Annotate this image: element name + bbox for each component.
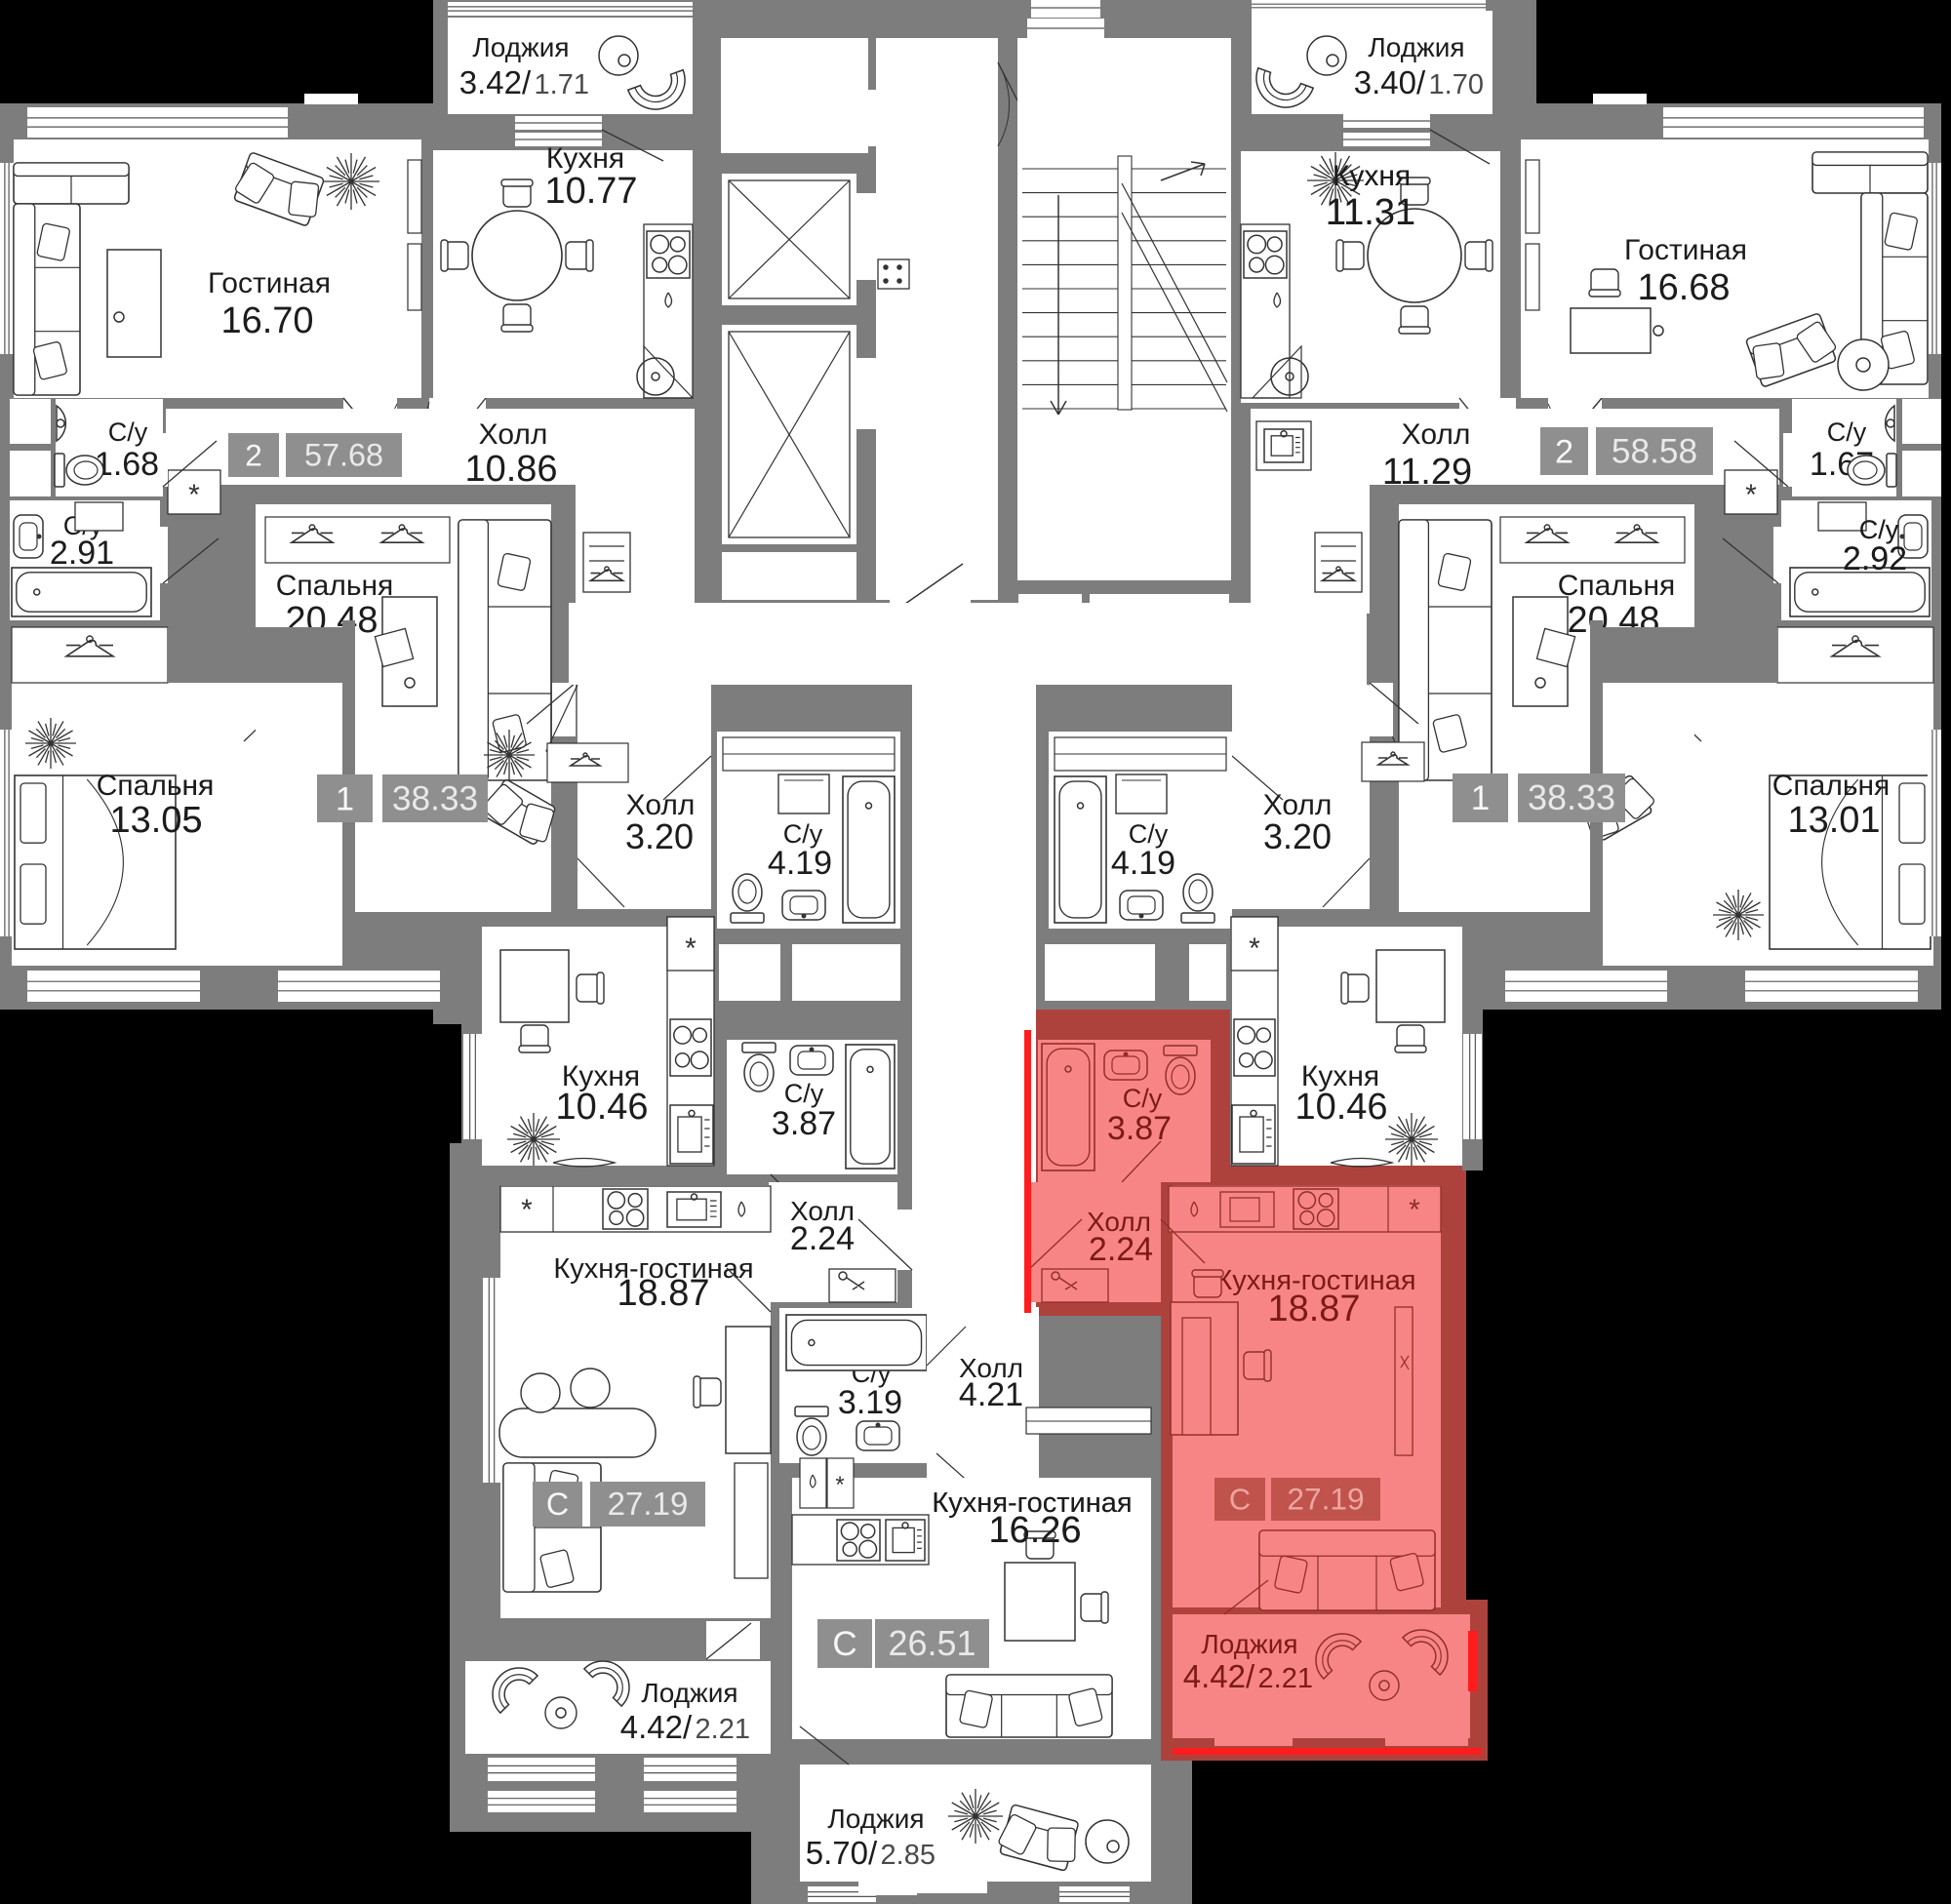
svg-text:18.87: 18.87 — [1267, 1289, 1360, 1329]
svg-text:16.68: 16.68 — [1637, 267, 1730, 308]
svg-text:*: * — [521, 1194, 533, 1226]
svg-text:*: * — [1745, 479, 1757, 511]
svg-text:26.51: 26.51 — [888, 1623, 975, 1663]
svg-text:3.20: 3.20 — [625, 816, 694, 856]
svg-text:*: * — [685, 932, 697, 965]
svg-text:2.21: 2.21 — [1258, 1663, 1313, 1694]
svg-text:Спальня: Спальня — [1558, 570, 1676, 602]
svg-text:/: / — [1416, 64, 1426, 100]
svg-text:Холл: Холл — [1402, 418, 1471, 451]
svg-text:/: / — [1246, 1658, 1255, 1694]
svg-text:16.26: 16.26 — [988, 1510, 1081, 1551]
svg-text:Спальня: Спальня — [276, 570, 394, 602]
svg-text:1.71: 1.71 — [535, 69, 589, 100]
svg-text:Холл: Холл — [479, 418, 548, 451]
svg-text:27.19: 27.19 — [608, 1487, 689, 1523]
svg-text:*: * — [1409, 1194, 1420, 1226]
svg-text:10.77: 10.77 — [544, 171, 637, 212]
svg-text:38.33: 38.33 — [1528, 777, 1615, 817]
svg-text:3.20: 3.20 — [1263, 816, 1332, 856]
svg-text:Спальня: Спальня — [1772, 770, 1891, 802]
svg-text:Лоджия: Лоджия — [827, 1804, 924, 1834]
svg-text:Гостиная: Гостиная — [208, 267, 331, 299]
svg-text:16.70: 16.70 — [220, 300, 313, 341]
svg-text:Кухня: Кухня — [1333, 160, 1411, 192]
svg-text:Лоджия: Лоджия — [641, 1678, 737, 1708]
svg-text:13.01: 13.01 — [1787, 800, 1880, 841]
svg-text:1.70: 1.70 — [1429, 69, 1484, 100]
svg-text:*: * — [188, 479, 200, 511]
svg-text:1.68: 1.68 — [95, 446, 159, 483]
svg-text:Спальня: Спальня — [97, 770, 215, 802]
svg-text:2.92: 2.92 — [1843, 540, 1907, 577]
svg-text:3.40: 3.40 — [1354, 64, 1416, 100]
svg-text:2.21: 2.21 — [696, 1714, 750, 1745]
svg-text:С: С — [1229, 1483, 1251, 1517]
svg-text:5.70: 5.70 — [806, 1835, 868, 1871]
svg-text:4.42: 4.42 — [620, 1709, 683, 1745]
svg-text:18.87: 18.87 — [617, 1273, 709, 1314]
svg-text:2.85: 2.85 — [881, 1840, 936, 1871]
svg-text:3.87: 3.87 — [1107, 1110, 1172, 1147]
svg-text:С: С — [546, 1487, 569, 1522]
svg-text:2: 2 — [1555, 433, 1573, 470]
svg-text:Лоджия: Лоджия — [1368, 32, 1464, 62]
svg-text:/: / — [868, 1835, 878, 1871]
svg-text:58.58: 58.58 — [1612, 432, 1697, 470]
svg-text:/: / — [683, 1709, 693, 1745]
svg-text:4.42: 4.42 — [1183, 1658, 1246, 1694]
svg-text:3.87: 3.87 — [772, 1105, 836, 1142]
svg-text:С/у: С/у — [108, 417, 148, 447]
svg-text:С/у: С/у — [784, 1079, 824, 1108]
svg-text:10.86: 10.86 — [464, 449, 557, 490]
svg-text:11.31: 11.31 — [1326, 192, 1415, 233]
svg-text:2: 2 — [245, 437, 262, 472]
svg-text:4.21: 4.21 — [959, 1376, 1023, 1413]
svg-text:4.19: 4.19 — [768, 845, 832, 882]
svg-text:27.19: 27.19 — [1287, 1482, 1364, 1517]
svg-text:С/у: С/у — [1123, 1084, 1163, 1113]
svg-text:Гостиная: Гостиная — [1624, 234, 1747, 266]
svg-text:Лоджия: Лоджия — [472, 32, 569, 62]
svg-text:3.19: 3.19 — [838, 1384, 902, 1421]
svg-text:*: * — [1249, 932, 1260, 965]
svg-text:1: 1 — [1471, 779, 1490, 817]
svg-text:10.46: 10.46 — [555, 1087, 648, 1128]
svg-text:Лоджия: Лоджия — [1201, 1629, 1297, 1659]
svg-text:1: 1 — [336, 780, 354, 817]
svg-text:4.19: 4.19 — [1111, 845, 1175, 882]
svg-text:57.68: 57.68 — [304, 437, 383, 472]
svg-text:2.24: 2.24 — [790, 1220, 855, 1257]
svg-text:2.24: 2.24 — [1089, 1231, 1153, 1268]
svg-text:3.42: 3.42 — [459, 64, 522, 100]
svg-text:2.91: 2.91 — [50, 535, 114, 572]
svg-text:10.46: 10.46 — [1294, 1087, 1387, 1128]
svg-text:11.29: 11.29 — [1382, 452, 1472, 493]
svg-text:38.33: 38.33 — [392, 779, 478, 817]
svg-text:*: * — [835, 1472, 844, 1498]
svg-text:/: / — [522, 64, 532, 100]
svg-text:13.05: 13.05 — [109, 800, 202, 841]
svg-text:С/у: С/у — [1827, 417, 1867, 447]
svg-text:С: С — [832, 1625, 856, 1663]
